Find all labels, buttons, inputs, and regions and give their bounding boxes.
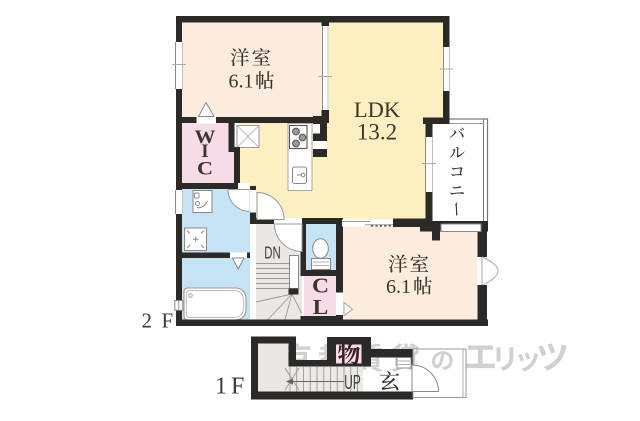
svg-text:6.1: 6.1	[386, 276, 411, 298]
svg-text:1F: 1F	[215, 373, 248, 399]
svg-text:LDK: LDK	[354, 97, 401, 122]
svg-text:C: C	[197, 159, 213, 180]
svg-text:13.2: 13.2	[357, 120, 397, 145]
svg-text:L: L	[313, 295, 329, 319]
svg-text:C: C	[312, 274, 329, 298]
svg-text:6.1: 6.1	[229, 71, 254, 93]
svg-text:2F: 2F	[142, 309, 183, 333]
svg-text:DN: DN	[264, 243, 281, 263]
svg-text:UP: UP	[344, 372, 361, 394]
